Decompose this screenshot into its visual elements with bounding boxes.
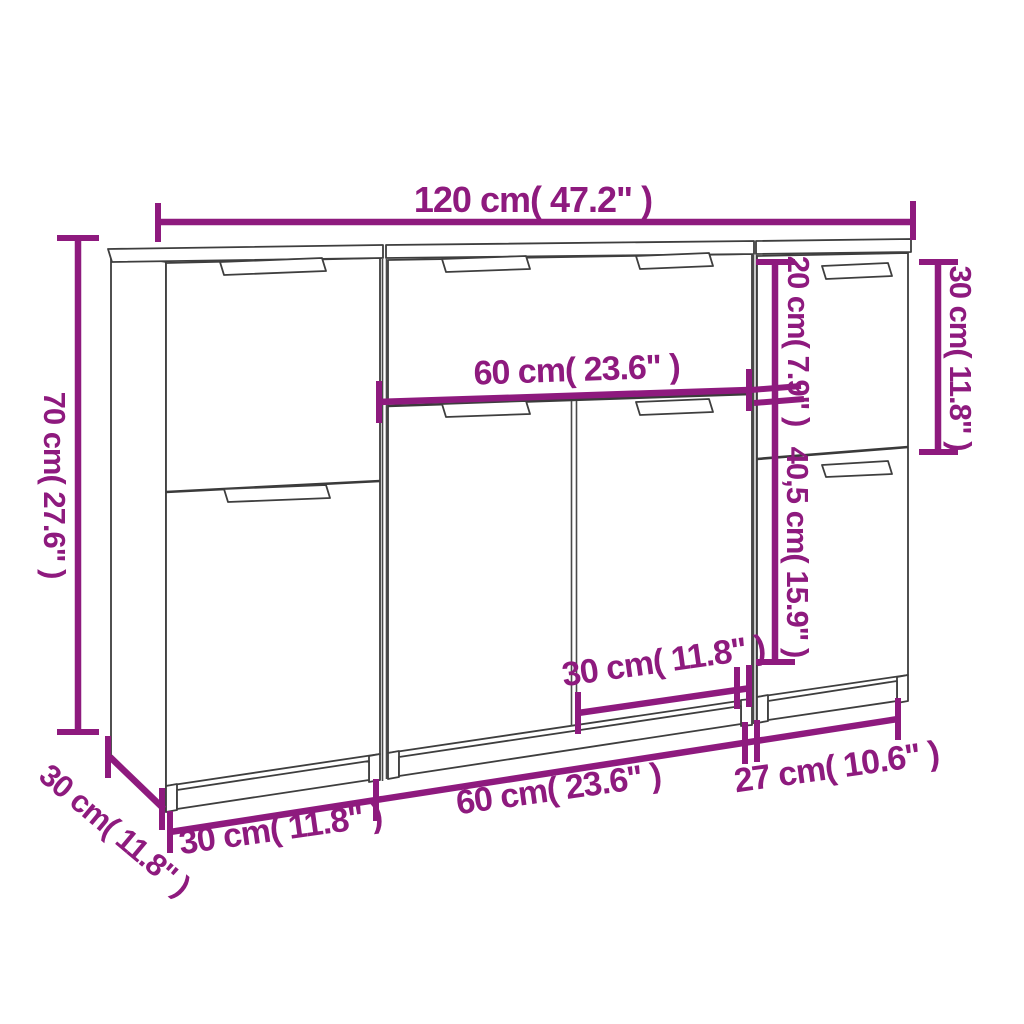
dim-label-right-cabinet-width: 27 cm( 10.6" ) [732,734,942,800]
dim-label-middle-width: 60 cm( 23.6" ) [473,347,680,392]
dim-label-right-drawer-height: 20 cm( 7.9" ) [781,256,816,427]
right-cabinet [756,239,911,723]
drawer-handle [442,256,530,272]
right-cabinet-top-slab [756,239,911,254]
left-cabinet [108,245,383,812]
cabinet-gap-left [383,259,387,781]
dim-right-top-section: 30 cm( 11.8" ) [919,262,978,452]
left-cabinet-side-panel [111,252,166,812]
door-handle [636,399,713,415]
dimension-diagram: 120 cm( 47.2" ) 70 cm( 27.6" ) 30 cm( 11… [0,0,1024,1024]
dim-label-right-door-height: 40,5 cm( 15.9" ) [780,447,815,658]
door-handle [220,258,326,275]
left-cabinet-left-leg [166,784,177,812]
left-cabinet-right-leg [369,754,380,782]
dim-label-total-width: 120 cm( 47.2" ) [414,179,652,220]
drawer-handle [822,263,892,279]
product-dimension-image: 120 cm( 47.2" ) 70 cm( 27.6" ) 30 cm( 11… [0,0,1024,1024]
left-cabinet-front [166,258,380,786]
middle-cabinet-left-leg [388,751,399,779]
dim-label-total-height: 70 cm( 27.6" ) [37,392,72,579]
door-handle [224,485,330,502]
dim-total-width: 120 cm( 47.2" ) [158,179,913,242]
dim-total-height: 70 cm( 27.6" ) [37,238,99,732]
door-handle [442,401,530,417]
dim-label-right-top-section: 30 cm( 11.8" ) [943,265,978,450]
right-cabinet-left-leg [757,695,768,723]
dim-label-middle-cabinet-bottom-width: 60 cm( 23.6" ) [454,756,664,822]
drawer-handle [636,253,713,269]
left-cabinet-top-slab [108,245,383,262]
dim-label-left-cabinet-width: 30 cm( 11.8" ) [177,796,385,862]
